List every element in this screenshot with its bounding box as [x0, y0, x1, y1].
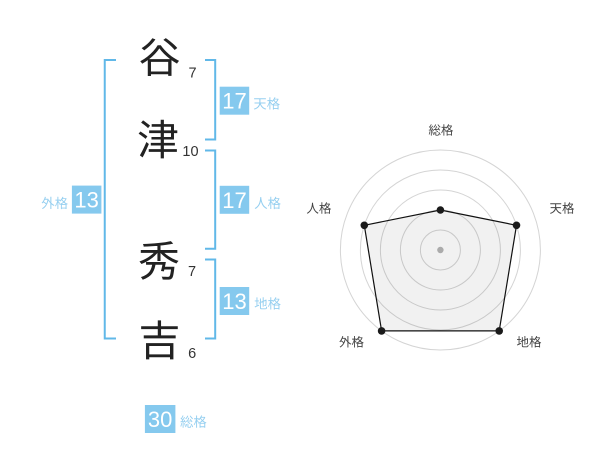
svg-text:30: 30: [148, 407, 172, 432]
svg-text:6: 6: [188, 346, 196, 362]
svg-text:17: 17: [222, 89, 246, 114]
svg-text:13: 13: [222, 289, 246, 314]
svg-text:13: 13: [74, 188, 98, 213]
svg-text:7: 7: [188, 264, 196, 280]
svg-text:7: 7: [188, 65, 196, 81]
svg-text:10: 10: [182, 144, 198, 160]
svg-text:17: 17: [222, 188, 246, 213]
